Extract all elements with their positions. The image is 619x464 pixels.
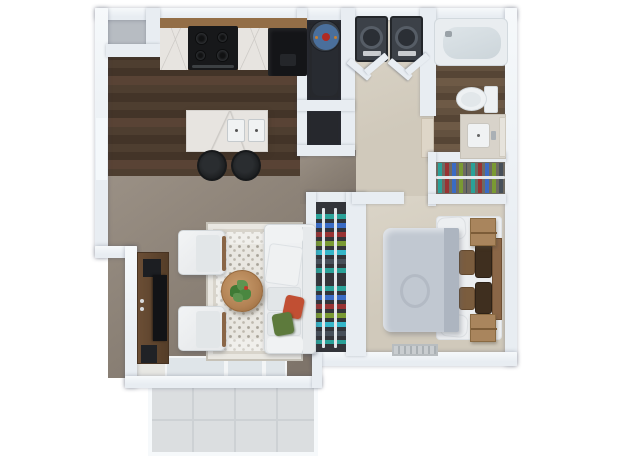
sink-drain	[477, 134, 480, 137]
vanity-mirror	[499, 117, 506, 157]
bar-stool	[231, 150, 261, 181]
burner	[217, 32, 228, 43]
vanity-faucet	[491, 131, 496, 140]
utility-divider	[297, 100, 355, 111]
drawer-line	[471, 328, 497, 330]
speaker	[141, 345, 157, 363]
patio-floor	[148, 386, 318, 456]
bed-pillow-tan	[459, 250, 475, 275]
utility-niche-floor	[305, 110, 345, 148]
armchair-wood-trim	[222, 312, 226, 347]
bed-pillow-espresso	[475, 244, 492, 278]
counter-marble-left	[160, 28, 188, 70]
console-knob	[140, 299, 144, 303]
tv-console	[137, 252, 169, 364]
armchair-seat	[196, 311, 220, 348]
sink-drain	[235, 129, 238, 132]
floor-vent	[392, 344, 438, 356]
toilet-seat	[461, 92, 481, 107]
bathtub-faucet	[445, 31, 452, 37]
bathtub	[434, 18, 508, 66]
toilet-bowl	[456, 87, 487, 111]
bed-pillow-tan	[459, 287, 475, 310]
plant-leaf	[233, 293, 243, 302]
washer-door	[360, 26, 383, 49]
window-kitchen	[96, 118, 107, 180]
wall-bedroom-top	[352, 192, 404, 204]
fridge-item	[280, 54, 296, 66]
kitchen-island	[186, 110, 268, 152]
bar-stool	[197, 150, 227, 181]
floor-plan	[0, 0, 619, 464]
burner	[195, 50, 206, 61]
plant-berry	[244, 286, 248, 290]
washer-controls	[363, 51, 381, 56]
wall-utility-hall	[341, 8, 355, 156]
armchair	[178, 306, 225, 351]
water-heater	[309, 20, 341, 52]
dryer	[390, 16, 423, 62]
duvet-fold	[444, 228, 459, 332]
bathroom-vanity	[460, 114, 506, 159]
water-heater-fitting	[315, 36, 318, 39]
closet-hall-rail	[322, 208, 325, 348]
dryer-controls	[398, 51, 416, 56]
oven-handle	[192, 65, 234, 68]
sofa-chaise-cushion	[264, 243, 303, 287]
armchair-seat	[196, 235, 220, 272]
closet-hall-rail	[334, 208, 337, 348]
closet-hall-clothes-group	[316, 286, 346, 344]
refrigerator	[268, 28, 307, 76]
closet-bed-frame-bottom	[428, 194, 506, 204]
range	[188, 26, 238, 70]
bed-headboard	[492, 238, 502, 320]
nightstand	[470, 218, 496, 246]
wall-bottom-step	[312, 352, 322, 388]
armchair	[178, 230, 225, 275]
tv	[153, 275, 167, 341]
dryer-door	[395, 26, 418, 49]
burner	[216, 49, 229, 62]
bed-duvet	[383, 228, 459, 332]
coffee-table	[221, 270, 263, 312]
sofa-arm	[267, 337, 303, 353]
counter-marble-right	[238, 28, 268, 70]
pantry-wall-bottom	[106, 44, 160, 57]
closet-hall-clothes-group	[316, 214, 346, 276]
sofa-back	[302, 227, 315, 353]
burner	[195, 32, 208, 45]
wall-bottom-living	[125, 376, 322, 388]
water-heater-fitting	[334, 36, 337, 39]
sofa-arm	[267, 227, 303, 243]
bed-pillow-espresso	[475, 282, 492, 314]
utility-bottom	[297, 145, 355, 156]
closet-bed-rail	[436, 176, 505, 179]
duvet-swirl	[400, 274, 430, 308]
sofa	[264, 224, 316, 354]
wall-bedroom-left	[346, 192, 366, 356]
armchair-wood-trim	[222, 236, 226, 271]
sofa-pillow-green	[271, 311, 295, 336]
water-heater-valve	[322, 33, 330, 41]
console-knob	[140, 307, 144, 311]
sink-drain	[255, 129, 258, 132]
nightstand	[470, 314, 496, 342]
wall-left-lower	[125, 246, 137, 388]
drawer-line	[471, 232, 497, 234]
